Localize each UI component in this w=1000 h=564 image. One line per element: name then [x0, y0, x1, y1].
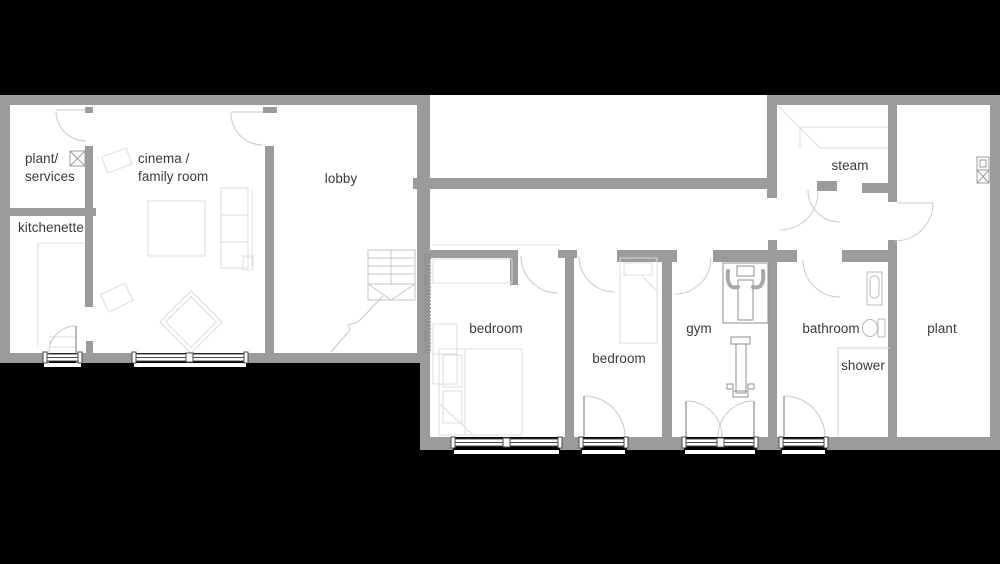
- door-sill: [682, 437, 758, 448]
- insulation-hatch: [424, 253, 431, 353]
- room-label-kitchenette: kitchenette: [18, 219, 84, 237]
- floor-plan: plant/ servicescinema / family roomkitch…: [0, 0, 1000, 564]
- room-label-plant: plant: [927, 320, 957, 338]
- room-label-cinema-family-room: cinema / family room: [138, 150, 208, 186]
- floor-plan-drawing: [0, 0, 1000, 564]
- vent-icon: [977, 157, 989, 170]
- room-label-shower: shower: [841, 357, 885, 375]
- window: [132, 352, 248, 363]
- room-label-steam: steam: [832, 157, 869, 175]
- door-sill: [43, 352, 82, 363]
- room-label-bedroom-1: bedroom: [469, 320, 523, 338]
- room-label-bedroom-2: bedroom: [592, 350, 646, 368]
- door-sill: [579, 437, 628, 448]
- floors-layer: [10, 95, 990, 437]
- room-label-lobby: lobby: [325, 170, 358, 188]
- door-sill: [779, 437, 828, 448]
- vent-icon: [977, 170, 989, 183]
- window: [451, 437, 562, 448]
- room-label-bathroom: bathroom: [802, 320, 859, 338]
- room-label-plant-services: plant/ services: [25, 150, 75, 186]
- room-label-gym: gym: [686, 320, 712, 338]
